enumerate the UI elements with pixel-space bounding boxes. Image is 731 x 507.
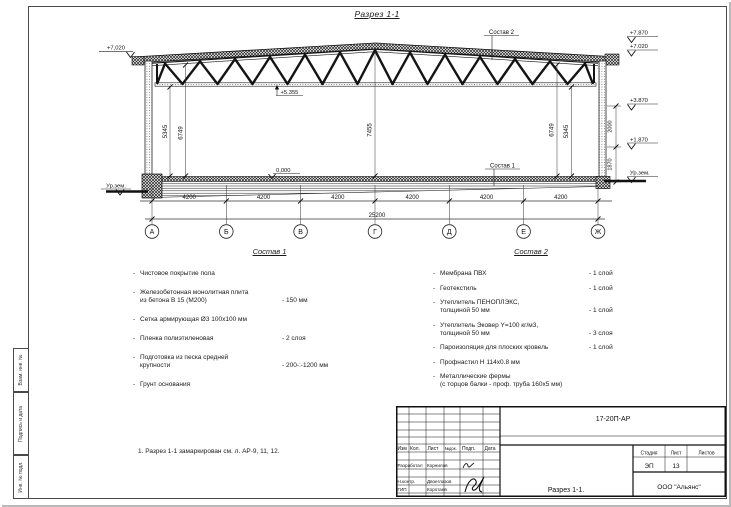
bay-dim: 4200 bbox=[480, 195, 494, 201]
height-dim: 5345 bbox=[163, 124, 169, 138]
list-item: - Утеплитель Эковер Y=100 кг/м3,толщиной… bbox=[433, 322, 629, 338]
drawing-sheet: { "title": "Разрез 1-1", "note": "1. Раз… bbox=[0, 0, 731, 507]
total-dim: 25200 bbox=[369, 213, 386, 219]
list-item: - Геотекстиль - 1 слой bbox=[433, 285, 629, 293]
elevation-mid: +3.870 bbox=[630, 98, 648, 104]
name-ncontrol: Двоеглазов bbox=[427, 479, 452, 484]
margin-label: Взам. инв. № bbox=[18, 355, 24, 386]
drawing-name: Разрез 1-1. bbox=[548, 487, 584, 494]
dimension-texts: 4200 4200 4200 4200 4200 4200 25200 5345… bbox=[163, 120, 614, 218]
margin-label: Инв. № подл. bbox=[18, 461, 24, 492]
elevation-ridge: +7.870 bbox=[630, 31, 648, 37]
title-block: 17-20П-АР Изм Кол. Лист №док. Подп. Дата… bbox=[396, 406, 726, 497]
elevation-low: +1.870 bbox=[630, 138, 648, 144]
axis-label: Ж bbox=[595, 229, 602, 236]
sostav2-title: Состав 2 bbox=[433, 248, 629, 256]
sheet-value: 13 bbox=[672, 463, 680, 470]
list-item: - Утеплитель ПЕНОПЛЭКС,толщиной 50 мм - … bbox=[433, 299, 629, 315]
axis-label: Е bbox=[521, 229, 526, 236]
section-drawing: А Б В Г Д Е Ж 4200 4200 4200 4200 4200 4… bbox=[0, 0, 731, 250]
axis-label: В bbox=[298, 229, 303, 236]
ref-sostav2: Состав 2 bbox=[489, 30, 515, 36]
list-item: - Пароизоляция для плоских кровель - 1 с… bbox=[433, 344, 629, 352]
col-izm: Изм bbox=[398, 446, 408, 452]
ref-sostav1: Состав 1 bbox=[490, 163, 516, 169]
axis-bubbles: А Б В Г Д Е Ж bbox=[145, 225, 605, 239]
margin-box-inv: Инв. № подл. bbox=[13, 455, 29, 499]
elevation-eave: +7.020 bbox=[630, 44, 648, 50]
col-data: Дата bbox=[485, 446, 496, 452]
list-item: - Профнастил Н 114х0.8 мм bbox=[433, 359, 629, 367]
list-item: - Металлические фермы(с торцов балки - п… bbox=[433, 373, 629, 389]
bay-dim: 4200 bbox=[554, 195, 568, 201]
list-item: - Грунт основания bbox=[133, 381, 348, 389]
axis-label: Д bbox=[447, 229, 452, 236]
bay-dim: 4200 bbox=[183, 195, 197, 201]
role-gip: ГИП bbox=[398, 487, 407, 492]
bay-dim: 4200 bbox=[257, 195, 271, 201]
company-name: ООО "Альянс" bbox=[657, 484, 701, 491]
elevation-right-ground: Ур.зем. bbox=[630, 171, 650, 177]
list-item: - Железобетонная монолитная плитаиз бето… bbox=[133, 289, 348, 305]
doc-code: 17-20П-АР bbox=[596, 416, 631, 423]
sostav1-title: Состав 1 bbox=[133, 248, 348, 256]
elevation-left-ground: Ур.зем. bbox=[106, 184, 126, 190]
col-list: Лист bbox=[428, 446, 440, 452]
name-developed: Корнилов bbox=[427, 463, 448, 468]
height-dim: 7455 bbox=[367, 123, 373, 137]
col-podp: Подп. bbox=[462, 446, 475, 452]
bay-dim: 4200 bbox=[331, 195, 345, 201]
col-kol: Кол. bbox=[410, 446, 420, 452]
sheets-label: Листов bbox=[698, 451, 715, 457]
elevation-floor: 0,000 bbox=[276, 168, 291, 174]
wall-dim: 2000 bbox=[607, 120, 613, 132]
list-item: - Подготовка из песка среднейкрупности -… bbox=[133, 354, 348, 370]
axis-label: А bbox=[150, 229, 155, 236]
elevation-left-top: +7,020 bbox=[107, 46, 125, 52]
sostav1-list: Состав 1 - Чистовое покрытие пола - Желе… bbox=[133, 248, 348, 400]
bay-dim: 4200 bbox=[406, 195, 420, 201]
name-gip: Коротаев bbox=[427, 487, 447, 492]
margin-label: Подпись и дата bbox=[18, 406, 24, 442]
role-developed: Разработал bbox=[398, 463, 423, 468]
height-dim: 6749 bbox=[549, 123, 555, 137]
margin-box-vzam: Взам. инв. № bbox=[13, 348, 29, 392]
list-item: - Сетка армирующая Ø3 100х100 мм bbox=[133, 316, 348, 324]
elevation-truss-bottom: +5.355 bbox=[281, 90, 299, 96]
col-ndok: №док. bbox=[445, 446, 457, 451]
stage-value: ЭП bbox=[644, 463, 654, 470]
height-dim: 5345 bbox=[564, 124, 570, 138]
role-ncontrol: Н.контр. bbox=[398, 479, 416, 484]
roof-slab bbox=[132, 43, 619, 65]
axis-label: Г bbox=[373, 229, 377, 236]
height-dim: 6749 bbox=[178, 126, 184, 140]
margin-box-podpis: Подпись и дата bbox=[13, 392, 29, 455]
list-item: - Мембрана ПВХ - 1 слой bbox=[433, 270, 629, 278]
sostav2-list: Состав 2 - Мембрана ПВХ - 1 слой - Геоте… bbox=[433, 248, 629, 396]
list-item: - Чистовое покрытие пола bbox=[133, 270, 348, 278]
stage-label: Стадия bbox=[640, 451, 657, 457]
wall-dim: 1870 bbox=[607, 158, 613, 170]
list-item: - Пленка полиэтиленовая - 2 слоя bbox=[133, 335, 348, 343]
note-text: 1. Разрез 1-1 замаркирован см. л. АР-9, … bbox=[138, 448, 280, 455]
sheet-label: Лист bbox=[671, 451, 683, 457]
axis-label: Б bbox=[224, 229, 229, 236]
